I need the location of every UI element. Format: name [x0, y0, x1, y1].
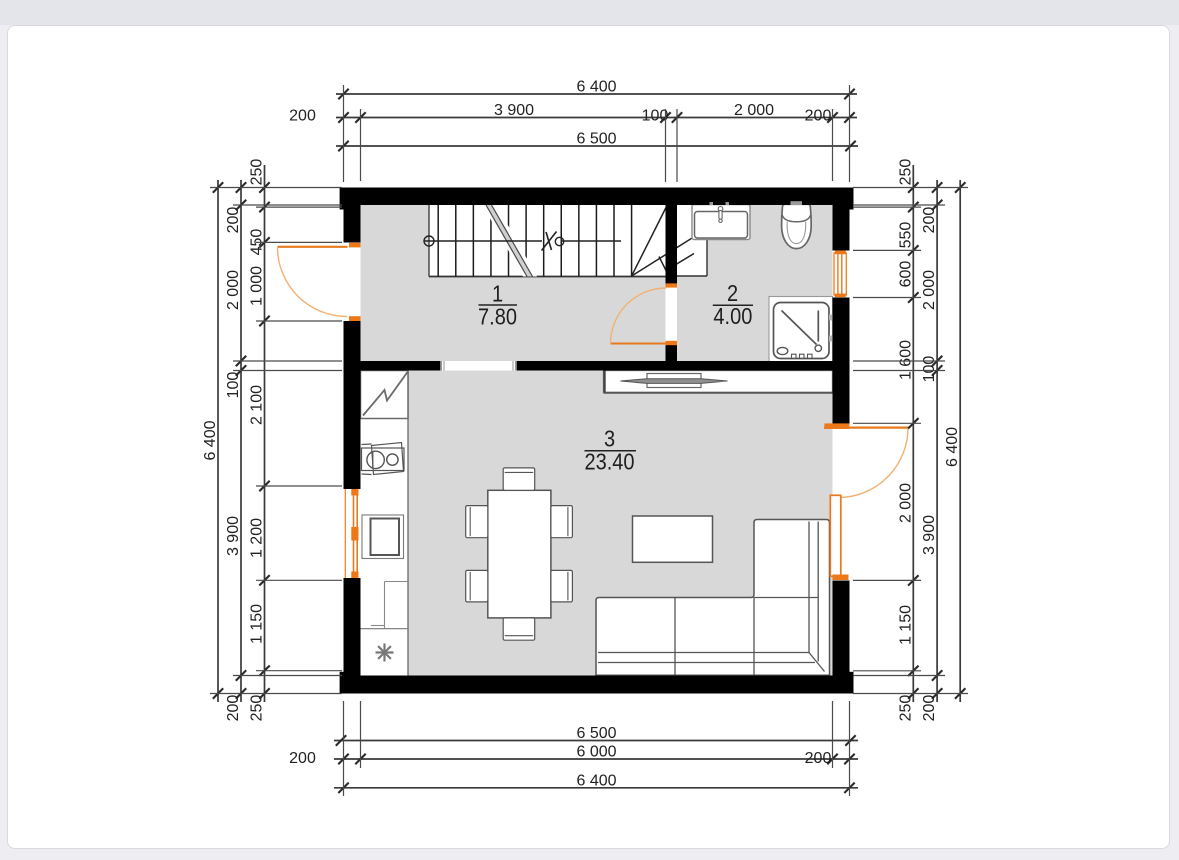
svg-text:2 100: 2 100	[249, 385, 266, 425]
svg-text:2 000: 2 000	[897, 483, 914, 523]
svg-text:200: 200	[921, 695, 938, 722]
svg-text:1 200: 1 200	[249, 518, 266, 558]
svg-text:200: 200	[289, 108, 316, 125]
svg-text:250: 250	[897, 695, 914, 722]
svg-text:600: 600	[897, 261, 914, 288]
svg-text:200: 200	[805, 750, 832, 767]
svg-text:6 400: 6 400	[576, 772, 616, 789]
svg-text:100: 100	[642, 108, 669, 125]
svg-text:100: 100	[225, 372, 242, 399]
svg-text:6 400: 6 400	[202, 420, 219, 460]
svg-text:1 600: 1 600	[897, 340, 914, 380]
svg-text:250: 250	[249, 159, 266, 186]
svg-text:7.80: 7.80	[478, 303, 517, 330]
svg-text:2 000: 2 000	[734, 102, 774, 119]
svg-text:6 000: 6 000	[576, 744, 616, 761]
svg-text:3 900: 3 900	[494, 102, 534, 119]
svg-text:3 900: 3 900	[921, 515, 938, 555]
svg-text:2 000: 2 000	[921, 270, 938, 310]
svg-text:2 000: 2 000	[225, 270, 242, 310]
svg-text:200: 200	[289, 750, 316, 767]
svg-text:6 400: 6 400	[944, 427, 961, 467]
svg-text:6 500: 6 500	[576, 131, 616, 148]
svg-text:1 150: 1 150	[249, 604, 266, 644]
svg-text:3 900: 3 900	[225, 516, 242, 556]
svg-text:200: 200	[225, 695, 242, 722]
svg-text:1 000: 1 000	[249, 266, 266, 306]
svg-text:200: 200	[225, 207, 242, 234]
svg-text:1 150: 1 150	[897, 605, 914, 645]
svg-text:100: 100	[921, 356, 938, 383]
svg-text:200: 200	[921, 207, 938, 234]
svg-text:250: 250	[249, 695, 266, 722]
svg-text:6 500: 6 500	[576, 725, 616, 742]
svg-text:250: 250	[897, 159, 914, 186]
svg-text:550: 550	[897, 222, 914, 249]
svg-text:23.40: 23.40	[584, 448, 634, 475]
svg-text:6 400: 6 400	[576, 79, 616, 96]
svg-text:4.00: 4.00	[713, 302, 752, 329]
svg-text:200: 200	[805, 108, 832, 125]
